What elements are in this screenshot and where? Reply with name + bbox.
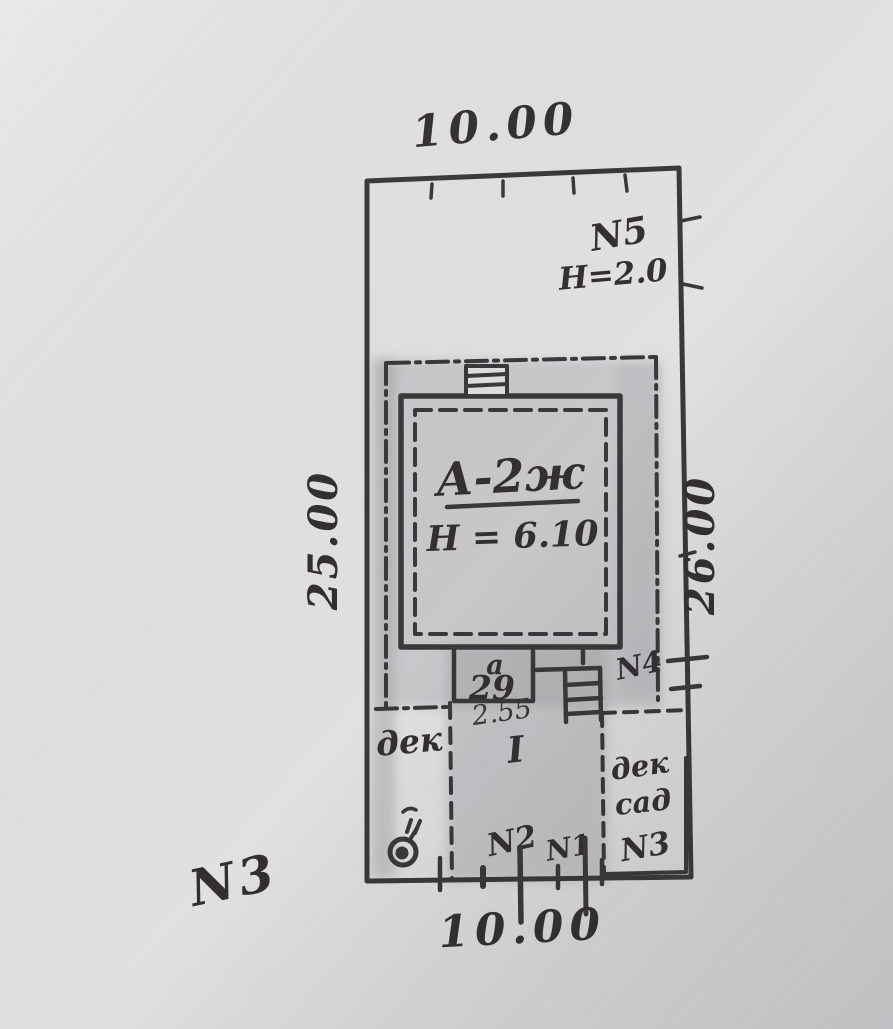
site-plan-svg: А-2ж Н = 6.10 а 29 2.55 I дек bbox=[0, 0, 893, 1029]
scanned-site-plan: А-2ж Н = 6.10 а 29 2.55 I дек bbox=[0, 0, 893, 1029]
photo-vignette bbox=[0, 0, 893, 1029]
